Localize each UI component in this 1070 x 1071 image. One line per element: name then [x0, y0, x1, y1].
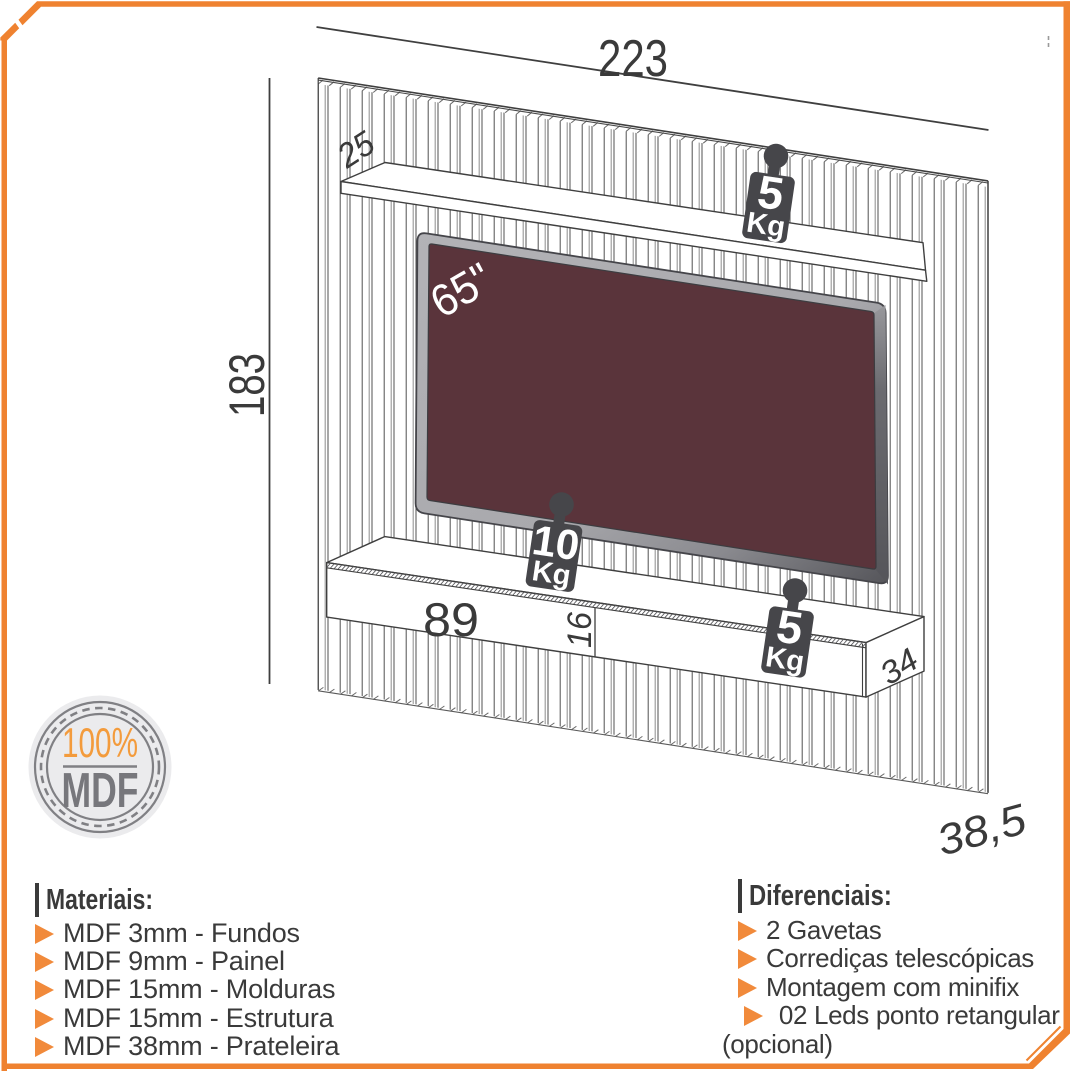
svg-text:89: 89 [423, 593, 479, 646]
svg-text:183: 183 [219, 353, 275, 417]
svg-text:Kg: Kg [530, 555, 573, 592]
svg-text:38,5: 38,5 [932, 795, 1033, 866]
svg-text:16: 16 [561, 612, 599, 648]
svg-text:223: 223 [598, 30, 668, 88]
svg-text:MDF: MDF [62, 764, 139, 818]
svg-text:Kg: Kg [763, 641, 806, 678]
svg-text:100%: 100% [62, 719, 138, 766]
svg-text:Kg: Kg [744, 207, 787, 244]
